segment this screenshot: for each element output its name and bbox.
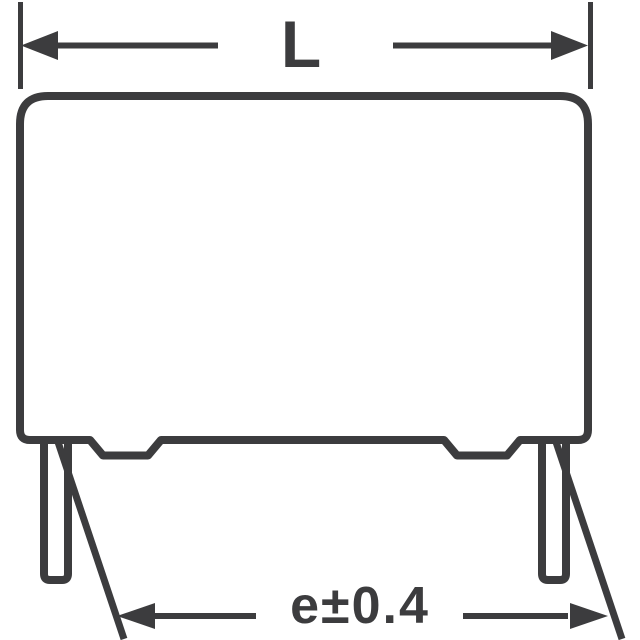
capacitor-outline-drawing: L e±0.4: [0, 0, 640, 640]
pitch-dimension-label: e±0.4: [290, 577, 430, 635]
length-dimension-label: L: [281, 7, 321, 81]
dimension-diagram-canvas: L e±0.4: [0, 0, 640, 640]
